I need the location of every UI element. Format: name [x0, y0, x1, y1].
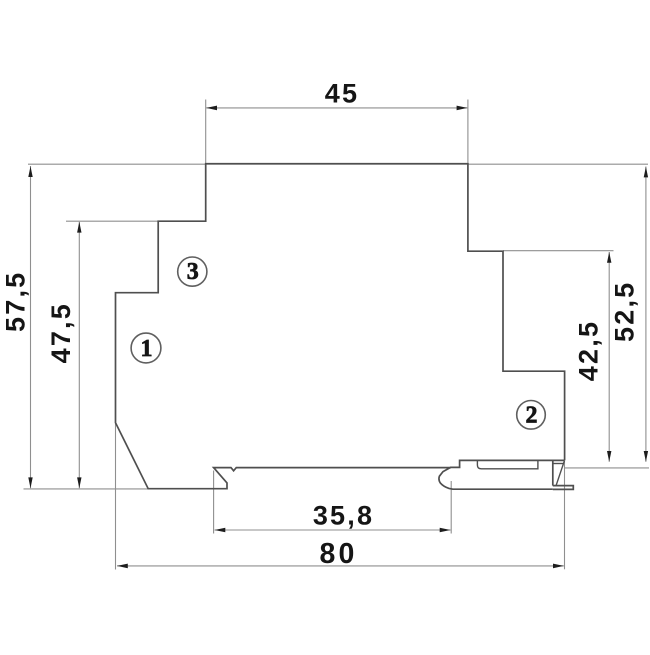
svg-text:42,5: 42,5	[573, 320, 603, 381]
svg-text:3: 3	[187, 259, 199, 285]
svg-text:45: 45	[325, 79, 359, 109]
svg-text:35,8: 35,8	[313, 501, 374, 531]
svg-text:1: 1	[141, 336, 153, 362]
svg-text:57,5: 57,5	[1, 271, 31, 332]
svg-text:52,5: 52,5	[610, 281, 640, 342]
svg-text:80: 80	[319, 538, 357, 570]
svg-text:47,5: 47,5	[46, 302, 76, 363]
svg-text:2: 2	[526, 402, 538, 428]
